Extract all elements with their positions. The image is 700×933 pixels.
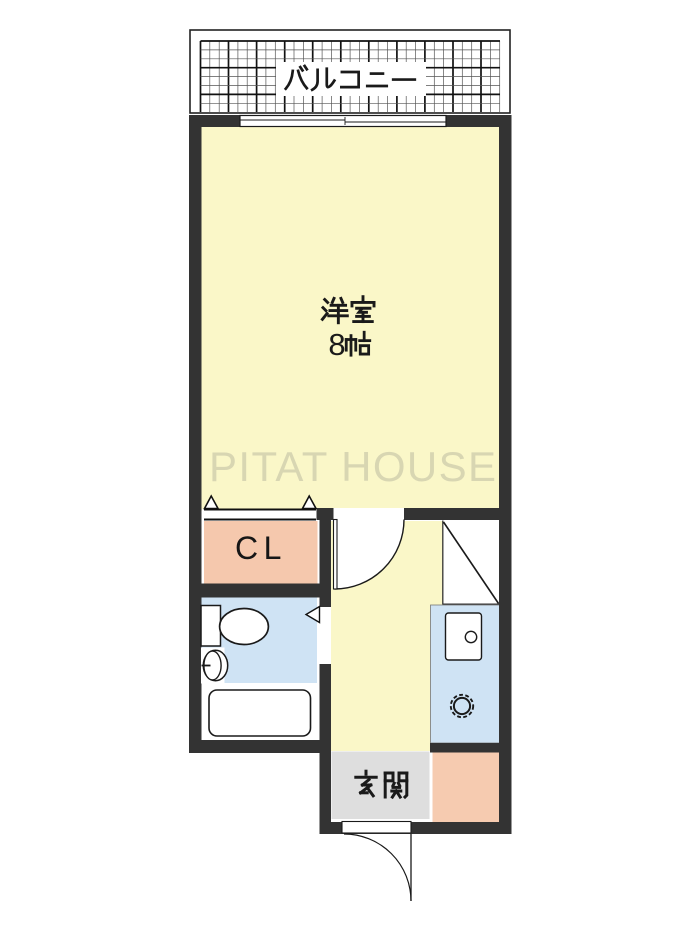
svg-text:PITAT HOUSE: PITAT HOUSE [209, 443, 497, 490]
svg-text:CL: CL [235, 530, 287, 566]
svg-text:8: 8 [328, 327, 345, 362]
